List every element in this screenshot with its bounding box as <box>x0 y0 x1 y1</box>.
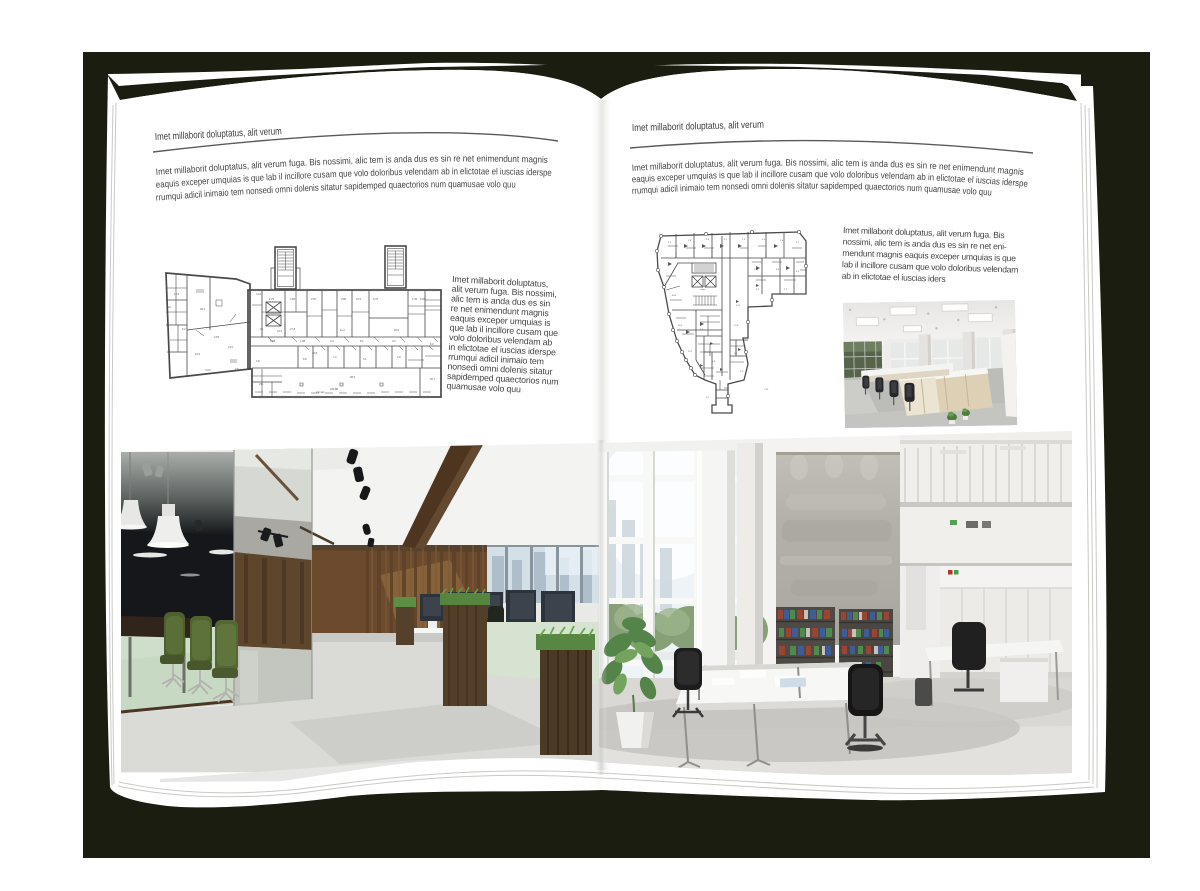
svg-text:98.3: 98.3 <box>350 375 356 379</box>
svg-text:36.2: 36.2 <box>200 307 206 311</box>
svg-text:6.1: 6.1 <box>363 357 367 361</box>
svg-text:2.75: 2.75 <box>269 297 275 301</box>
svg-text:3.80: 3.80 <box>341 297 347 301</box>
svg-text:5.98: 5.98 <box>270 339 276 343</box>
svg-text:5.75: 5.75 <box>373 297 379 301</box>
svg-text:4.8: 4.8 <box>256 359 260 363</box>
svg-text:9.1: 9.1 <box>168 305 172 309</box>
svg-text:8.35: 8.35 <box>420 297 426 301</box>
svg-text:27.8: 27.8 <box>290 327 296 331</box>
svg-text:12.6: 12.6 <box>174 292 180 296</box>
svg-text:2.4: 2.4 <box>330 339 334 343</box>
svg-text:1.98: 1.98 <box>300 339 306 343</box>
svg-text:4.65: 4.65 <box>214 335 220 339</box>
svg-text:3.10: 3.10 <box>256 292 262 296</box>
svg-text:16.5: 16.5 <box>356 297 362 301</box>
svg-text:23b: 23b <box>259 382 264 386</box>
svg-text:3.9: 3.9 <box>235 367 239 371</box>
svg-text:2-й зал: 2-й зал <box>316 390 325 394</box>
svg-text:11.2: 11.2 <box>340 328 345 332</box>
svg-text:7.2: 7.2 <box>333 355 337 359</box>
svg-text:6.8: 6.8 <box>303 357 307 361</box>
svg-text:1.45: 1.45 <box>412 297 418 301</box>
svg-text:342.88: 342.88 <box>330 387 338 391</box>
svg-text:21.6: 21.6 <box>277 329 283 333</box>
svg-text:4.5: 4.5 <box>397 355 401 359</box>
svg-text:3.3: 3.3 <box>392 339 396 343</box>
svg-text:13.6: 13.6 <box>228 345 234 349</box>
svg-text:лифт: лифт <box>700 288 705 291</box>
svg-text:6.2: 6.2 <box>182 327 186 331</box>
svg-text:2.80: 2.80 <box>290 297 296 301</box>
svg-text:2.50: 2.50 <box>311 297 317 301</box>
svg-text:8.1: 8.1 <box>360 339 364 343</box>
svg-text:10.8: 10.8 <box>312 351 318 355</box>
svg-text:30.7: 30.7 <box>430 377 436 381</box>
svg-text:24.6: 24.6 <box>394 328 400 332</box>
svg-text:6.3: 6.3 <box>430 342 434 346</box>
svg-text:43.3: 43.3 <box>195 352 201 356</box>
